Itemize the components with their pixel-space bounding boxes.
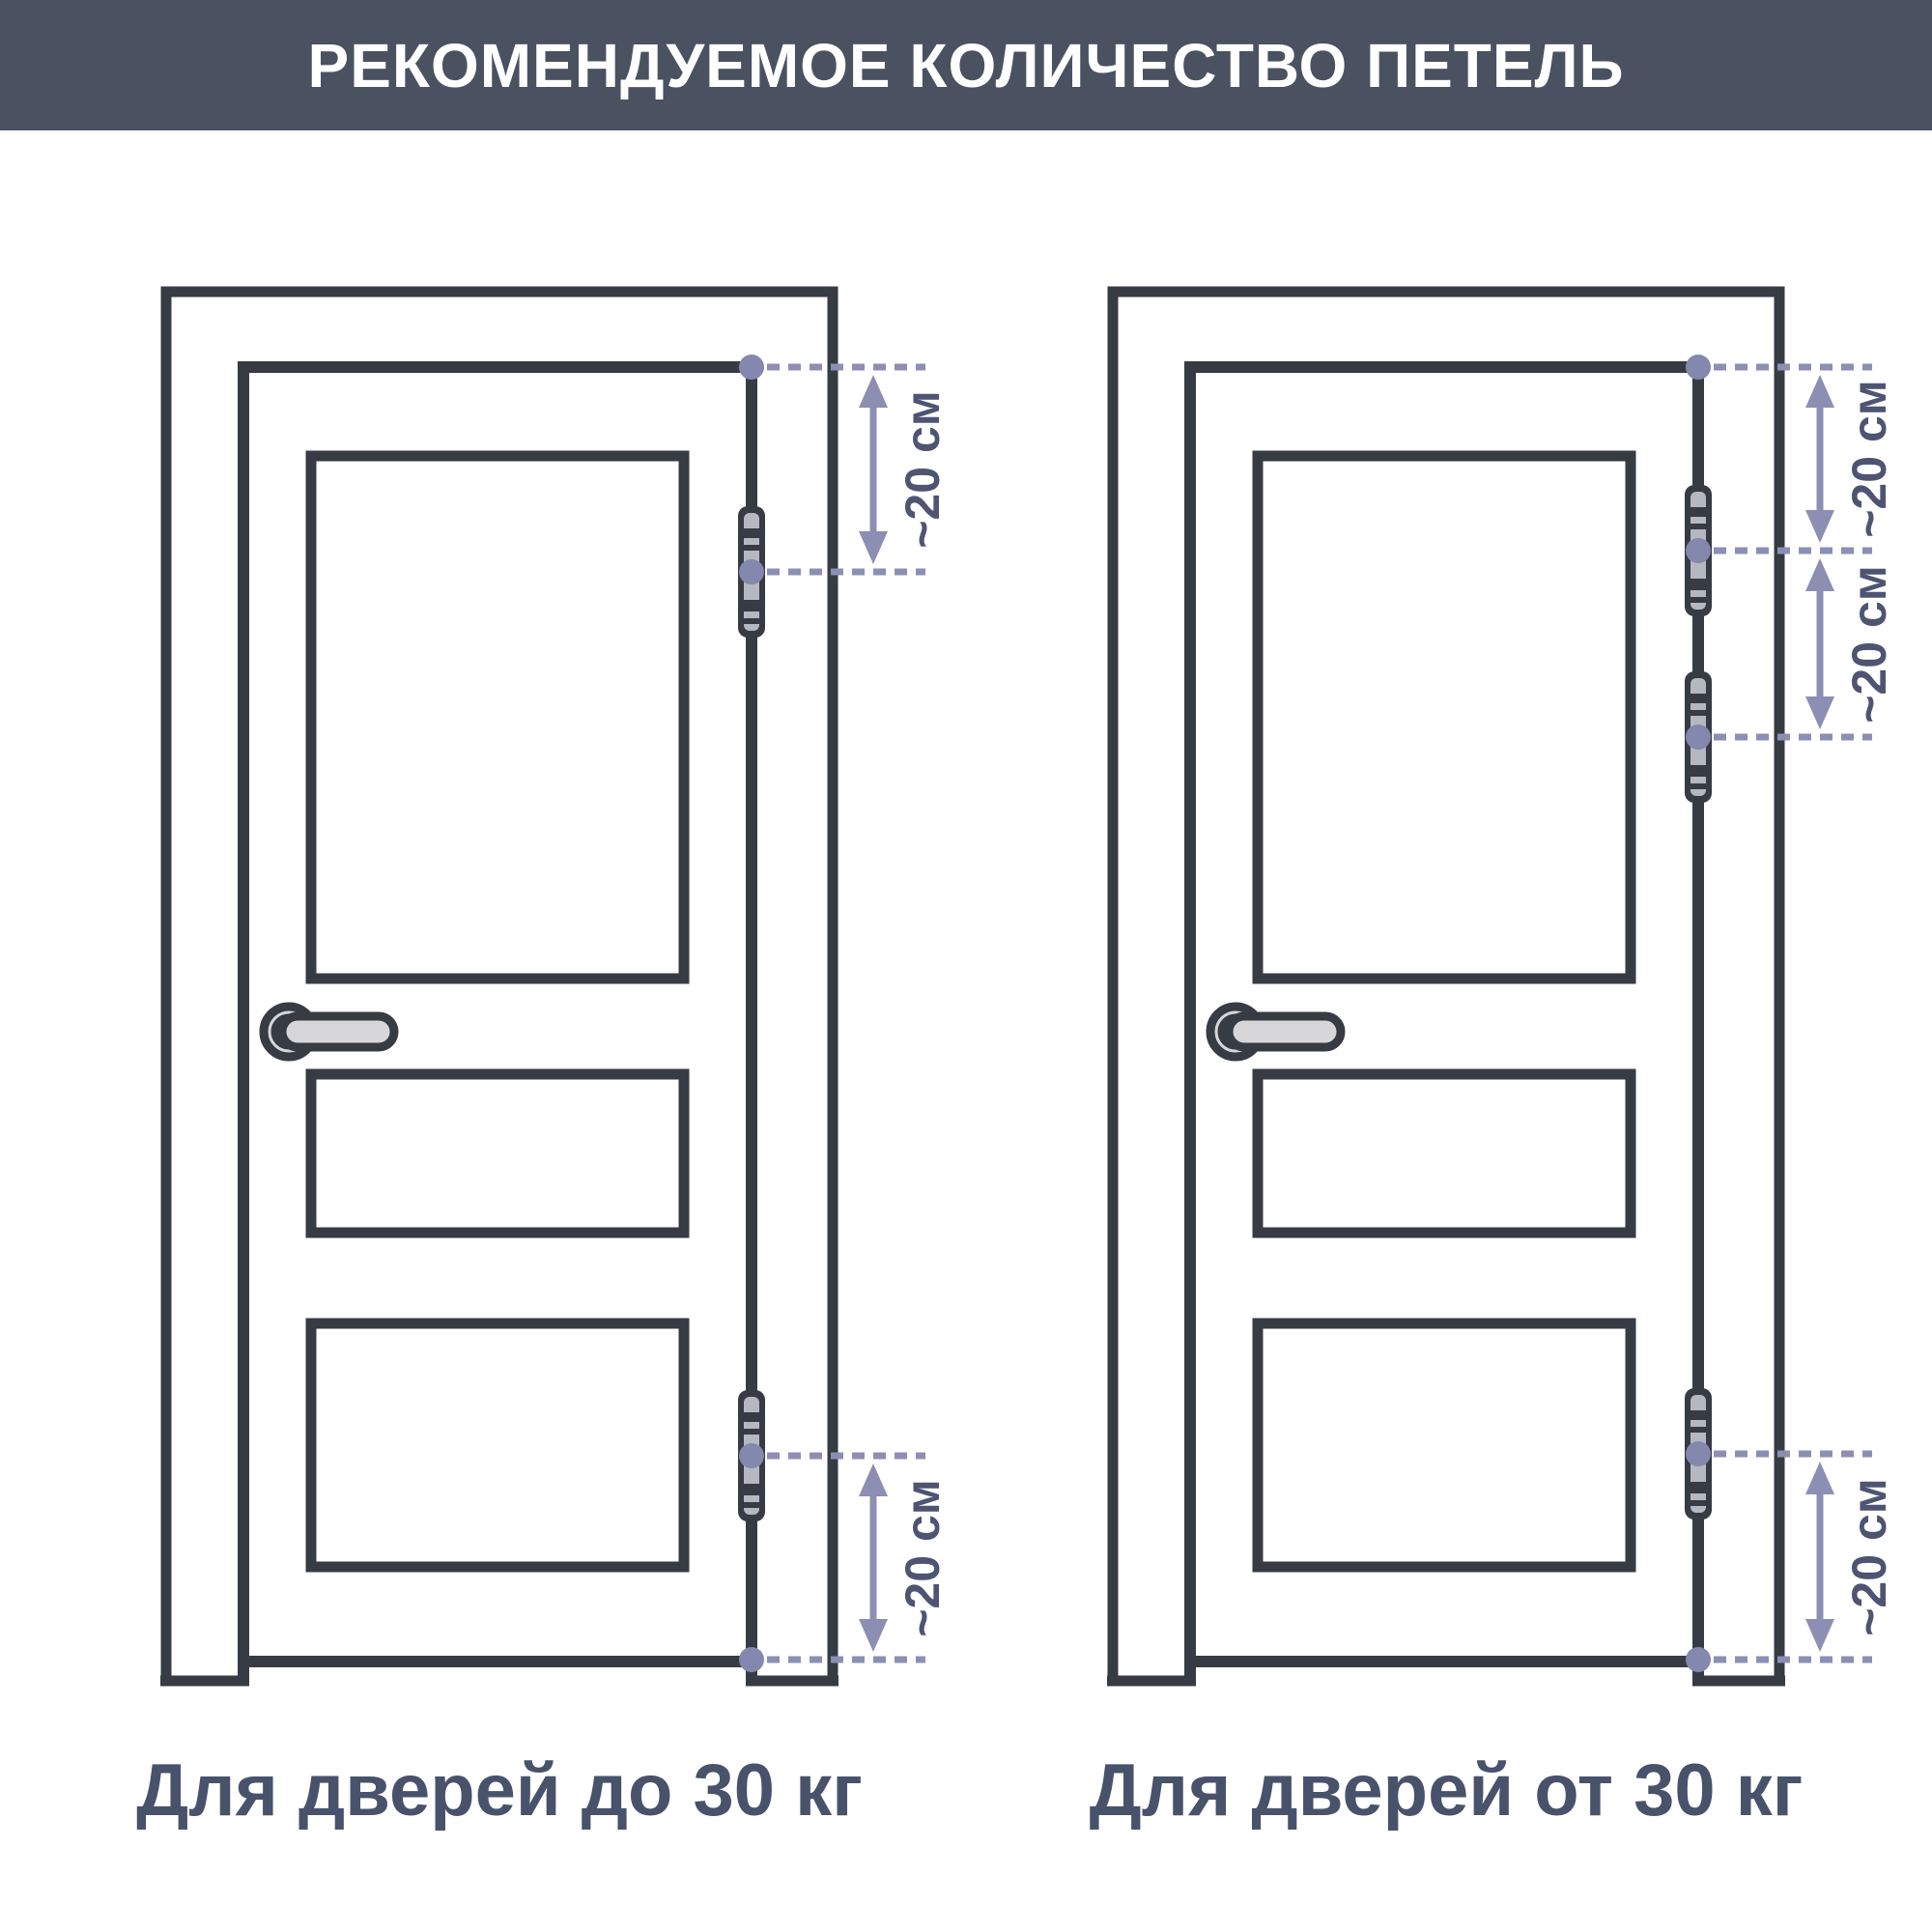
arrow-up-icon	[1805, 1462, 1834, 1494]
arrow-up-icon	[1805, 375, 1834, 408]
dimension-middle-right-door: ~20 см	[1686, 558, 1896, 750]
arrow-up-icon	[859, 1463, 888, 1496]
doors-diagram: ~20 см ~20 см	[0, 0, 1932, 1932]
hinge-count-infographic: ~20 см ~20 см	[0, 0, 1932, 1932]
dimension-bottom-left-door: ~20 см	[739, 1443, 950, 1672]
arrow-up-icon	[1805, 558, 1834, 591]
door-shell-right	[1107, 292, 1785, 1686]
dimension-top-left-door: ~20 см	[739, 355, 950, 584]
dimension-dot	[1686, 538, 1711, 563]
arrow-down-icon	[859, 531, 888, 564]
door-diagram-right: ~20 см ~20 см ~20 см	[1107, 292, 1896, 1686]
dimension-dot	[1686, 1441, 1711, 1466]
dimension-label: ~20 см	[1842, 380, 1896, 538]
arrow-down-icon	[1805, 510, 1834, 543]
dimension-dot	[739, 559, 764, 584]
arrow-up-icon	[859, 375, 888, 408]
door-diagram-left: ~20 см ~20 см	[160, 292, 950, 1686]
page-title: РЕКОМЕНДУЕМОЕ КОЛИЧЕСТВО ПЕТЕЛЬ	[308, 30, 1625, 101]
dimension-dot	[739, 355, 764, 380]
door-label-over-30kg: Для дверей от 30 кг	[1011, 1750, 1881, 1832]
dimension-label: ~20 см	[895, 390, 950, 549]
door-shell-left	[160, 292, 838, 1686]
dimension-dot	[739, 1647, 764, 1672]
arrow-down-icon	[859, 1619, 888, 1652]
dimension-dot	[1686, 355, 1711, 380]
dimension-label: ~20 см	[1842, 565, 1896, 724]
dimension-dot	[739, 1443, 764, 1468]
door-label-up-to-30kg: Для дверей до 30 кг	[65, 1750, 934, 1832]
header-bar: РЕКОМЕНДУЕМОЕ КОЛИЧЕСТВО ПЕТЕЛЬ	[0, 0, 1932, 130]
dimension-bottom-right-door: ~20 см	[1686, 1441, 1896, 1672]
arrow-down-icon	[1805, 1619, 1834, 1652]
arrow-down-icon	[1805, 696, 1834, 729]
dimension-dot	[1686, 1647, 1711, 1672]
dimension-top-right-door: ~20 см	[1686, 355, 1896, 563]
dimension-label: ~20 см	[895, 1479, 950, 1637]
dimension-label: ~20 см	[1842, 1478, 1896, 1636]
dimension-dot	[1686, 724, 1711, 750]
